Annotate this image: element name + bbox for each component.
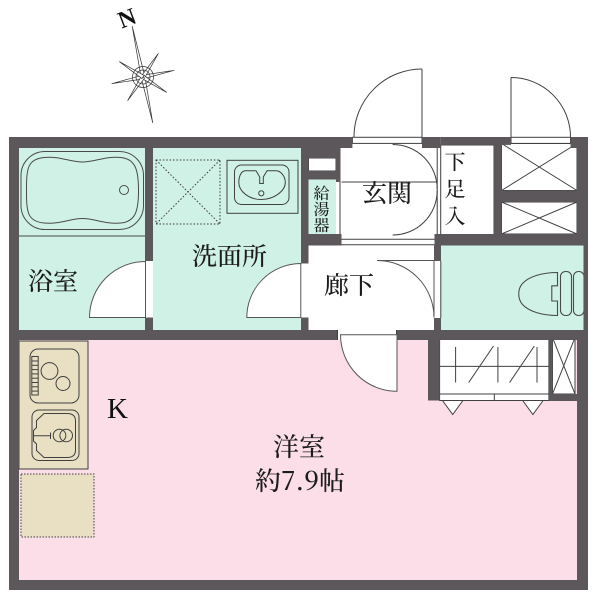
svg-text:K: K	[107, 393, 128, 425]
